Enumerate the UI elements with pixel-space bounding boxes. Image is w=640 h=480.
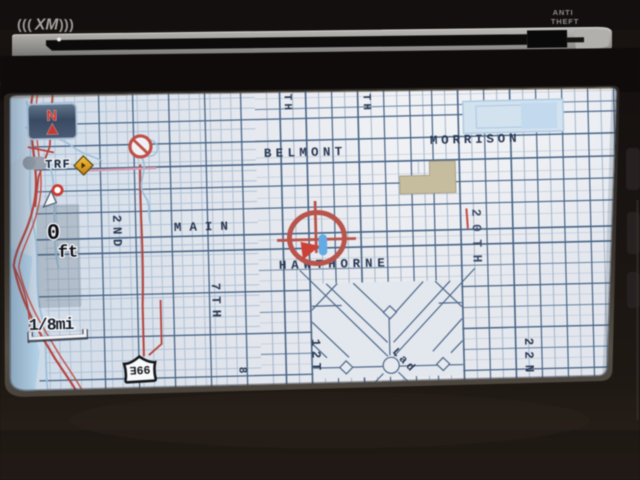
svg-text:TH: TH	[281, 94, 293, 113]
svg-text:7TH: 7TH	[208, 283, 223, 324]
svg-text:MAIN: MAIN	[174, 219, 236, 235]
svg-text:MORRISON: MORRISON	[430, 132, 521, 148]
svg-text:N: N	[46, 108, 57, 124]
svg-text:ANTI: ANTI	[553, 8, 574, 17]
svg-text:22N: 22N	[521, 338, 536, 379]
svg-text:8: 8	[235, 367, 247, 376]
svg-text:TRF: TRF	[45, 157, 71, 172]
svg-text:XM: XM	[34, 17, 59, 34]
svg-text:0: 0	[47, 221, 61, 246]
svg-text:12T: 12T	[308, 339, 323, 375]
svg-text:))): )))	[59, 16, 74, 32]
svg-text:99E: 99E	[129, 362, 151, 376]
svg-text:(((: (((	[17, 16, 32, 32]
svg-text:2ND: 2ND	[109, 215, 124, 251]
svg-text:TH: TH	[359, 94, 371, 113]
svg-text:ft: ft	[58, 244, 79, 263]
svg-text:THEFT: THEFT	[551, 17, 579, 26]
svg-text:BELMONT: BELMONT	[264, 145, 347, 161]
svg-text:20TH: 20TH	[468, 209, 484, 271]
